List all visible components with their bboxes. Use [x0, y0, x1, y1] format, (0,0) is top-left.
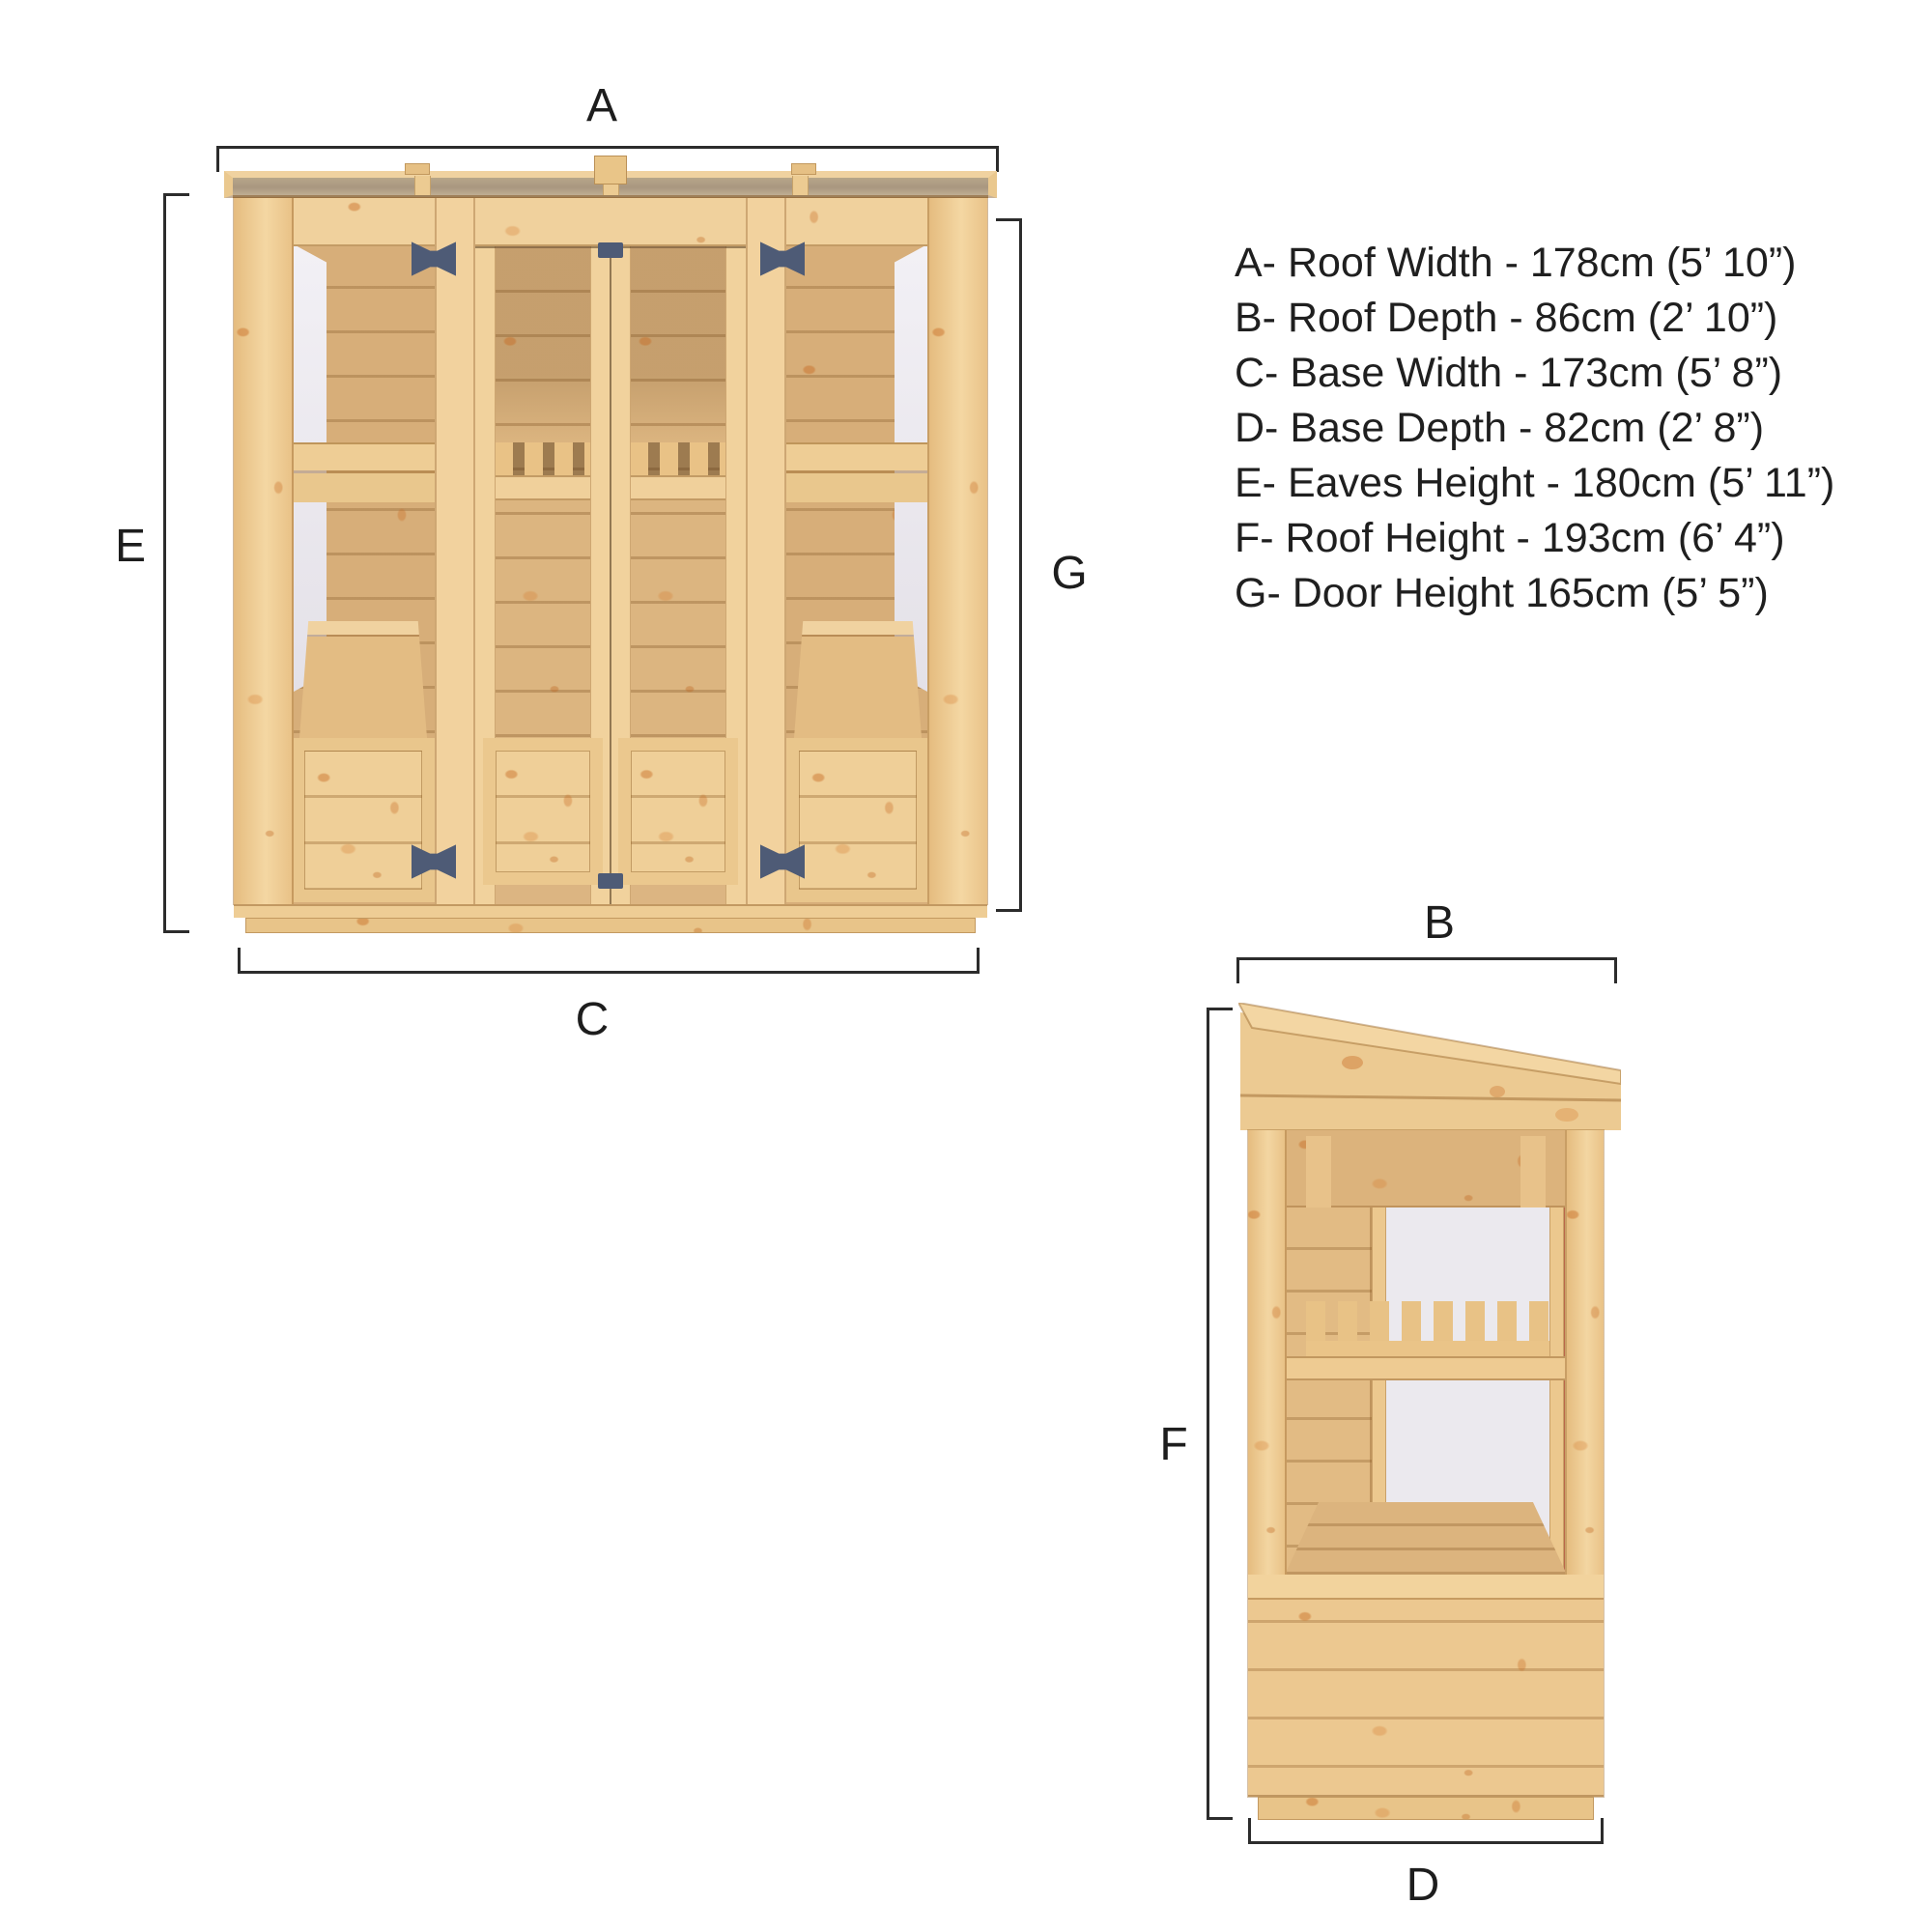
base-plinth [245, 918, 976, 933]
fixed-window-bay-left [292, 244, 435, 904]
dim-label-a: A [568, 79, 636, 132]
shelf-slats-through-glass [630, 442, 726, 475]
door-right [611, 244, 746, 904]
side-wall [1248, 1130, 1604, 1797]
legend-line-f: F- Roof Height - 193cm (6’ 4”) [1235, 511, 1834, 566]
roof-center-cap [594, 156, 627, 185]
legend-line-b: B- Roof Depth - 86cm (2’ 10”) [1235, 291, 1834, 346]
dim-line-e [163, 193, 166, 933]
mullion-right [746, 198, 786, 904]
door-meeting-gap [610, 244, 611, 904]
interior-stud [1306, 1136, 1331, 1207]
interior-floor [1285, 1502, 1567, 1575]
base-rail [234, 904, 987, 918]
lower-timber-panel [786, 738, 929, 902]
front-wall [234, 198, 987, 904]
legend-line-c: C- Base Width - 173cm (5’ 8”) [1235, 346, 1834, 401]
head-beam [234, 198, 987, 246]
panel-inset [631, 751, 725, 872]
interior-planter-box [299, 621, 427, 738]
side-building [1238, 1003, 1621, 1820]
wood-knot [1342, 1056, 1363, 1069]
roof-bar [792, 176, 809, 195]
legend-line-a: A- Roof Width - 178cm (5’ 10”) [1235, 236, 1834, 291]
dim-label-e: E [97, 520, 164, 573]
fixed-window-bay-right [786, 244, 929, 904]
interior-planter-box [794, 621, 922, 738]
door-latch-icon [598, 242, 623, 258]
dim-line-g [1019, 218, 1022, 912]
corner-post-left [234, 198, 294, 904]
roof-bar [414, 176, 431, 195]
panel-inset [304, 751, 422, 890]
shelf-slats-through-glass [495, 442, 591, 475]
dim-label-b: B [1406, 896, 1473, 950]
dim-line-c [238, 971, 980, 974]
side-pent-roof [1238, 1003, 1621, 1130]
side-corner-post-right [1565, 1130, 1604, 1575]
legend-line-e: E- Eaves Height - 180cm (5’ 11”) [1235, 456, 1834, 511]
panel-inset [799, 751, 917, 890]
inner-glazing-post [1549, 1207, 1564, 1575]
panel-inset [496, 751, 590, 872]
roof-bar-tab [791, 163, 816, 175]
lower-shiplap-cladding [1248, 1575, 1604, 1797]
legend-line-g: G- Door Height 165cm (5’ 5”) [1235, 566, 1834, 621]
interior-roof-framing [1248, 1130, 1604, 1207]
staging-shelf-edge [786, 442, 929, 502]
interior-stud [1520, 1136, 1546, 1207]
dim-label-g: G [1036, 547, 1103, 600]
dim-label-f: F [1140, 1418, 1207, 1471]
roof-bar-tab [405, 163, 430, 175]
wood-knot [1490, 1086, 1505, 1097]
door-lower-panel [483, 738, 603, 885]
wood-knot [1555, 1108, 1578, 1122]
door-lower-panel [618, 738, 738, 885]
diagram-canvas: A E G C [0, 0, 1932, 1932]
staging-shelf-edge [292, 442, 435, 502]
side-corner-post-left [1248, 1130, 1287, 1575]
dim-line-d [1248, 1841, 1604, 1844]
dim-label-c: C [558, 993, 626, 1046]
corner-post-right [927, 198, 987, 904]
dim-line-b [1236, 957, 1617, 960]
side-base-plinth [1258, 1797, 1594, 1820]
legend-line-d: D- Base Depth - 82cm (2’ 8”) [1235, 401, 1834, 456]
door-latch-icon [598, 873, 623, 889]
front-building [224, 171, 997, 933]
door-left [475, 244, 611, 904]
dim-line-a [216, 146, 999, 149]
dim-label-d: D [1389, 1859, 1457, 1912]
mullion-left [435, 198, 475, 904]
shelf-front-edge [1306, 1341, 1549, 1356]
dimension-legend: A- Roof Width - 178cm (5’ 10”) B- Roof D… [1235, 236, 1834, 621]
shelf-rail [1248, 1356, 1604, 1380]
dim-line-f [1207, 1008, 1209, 1820]
